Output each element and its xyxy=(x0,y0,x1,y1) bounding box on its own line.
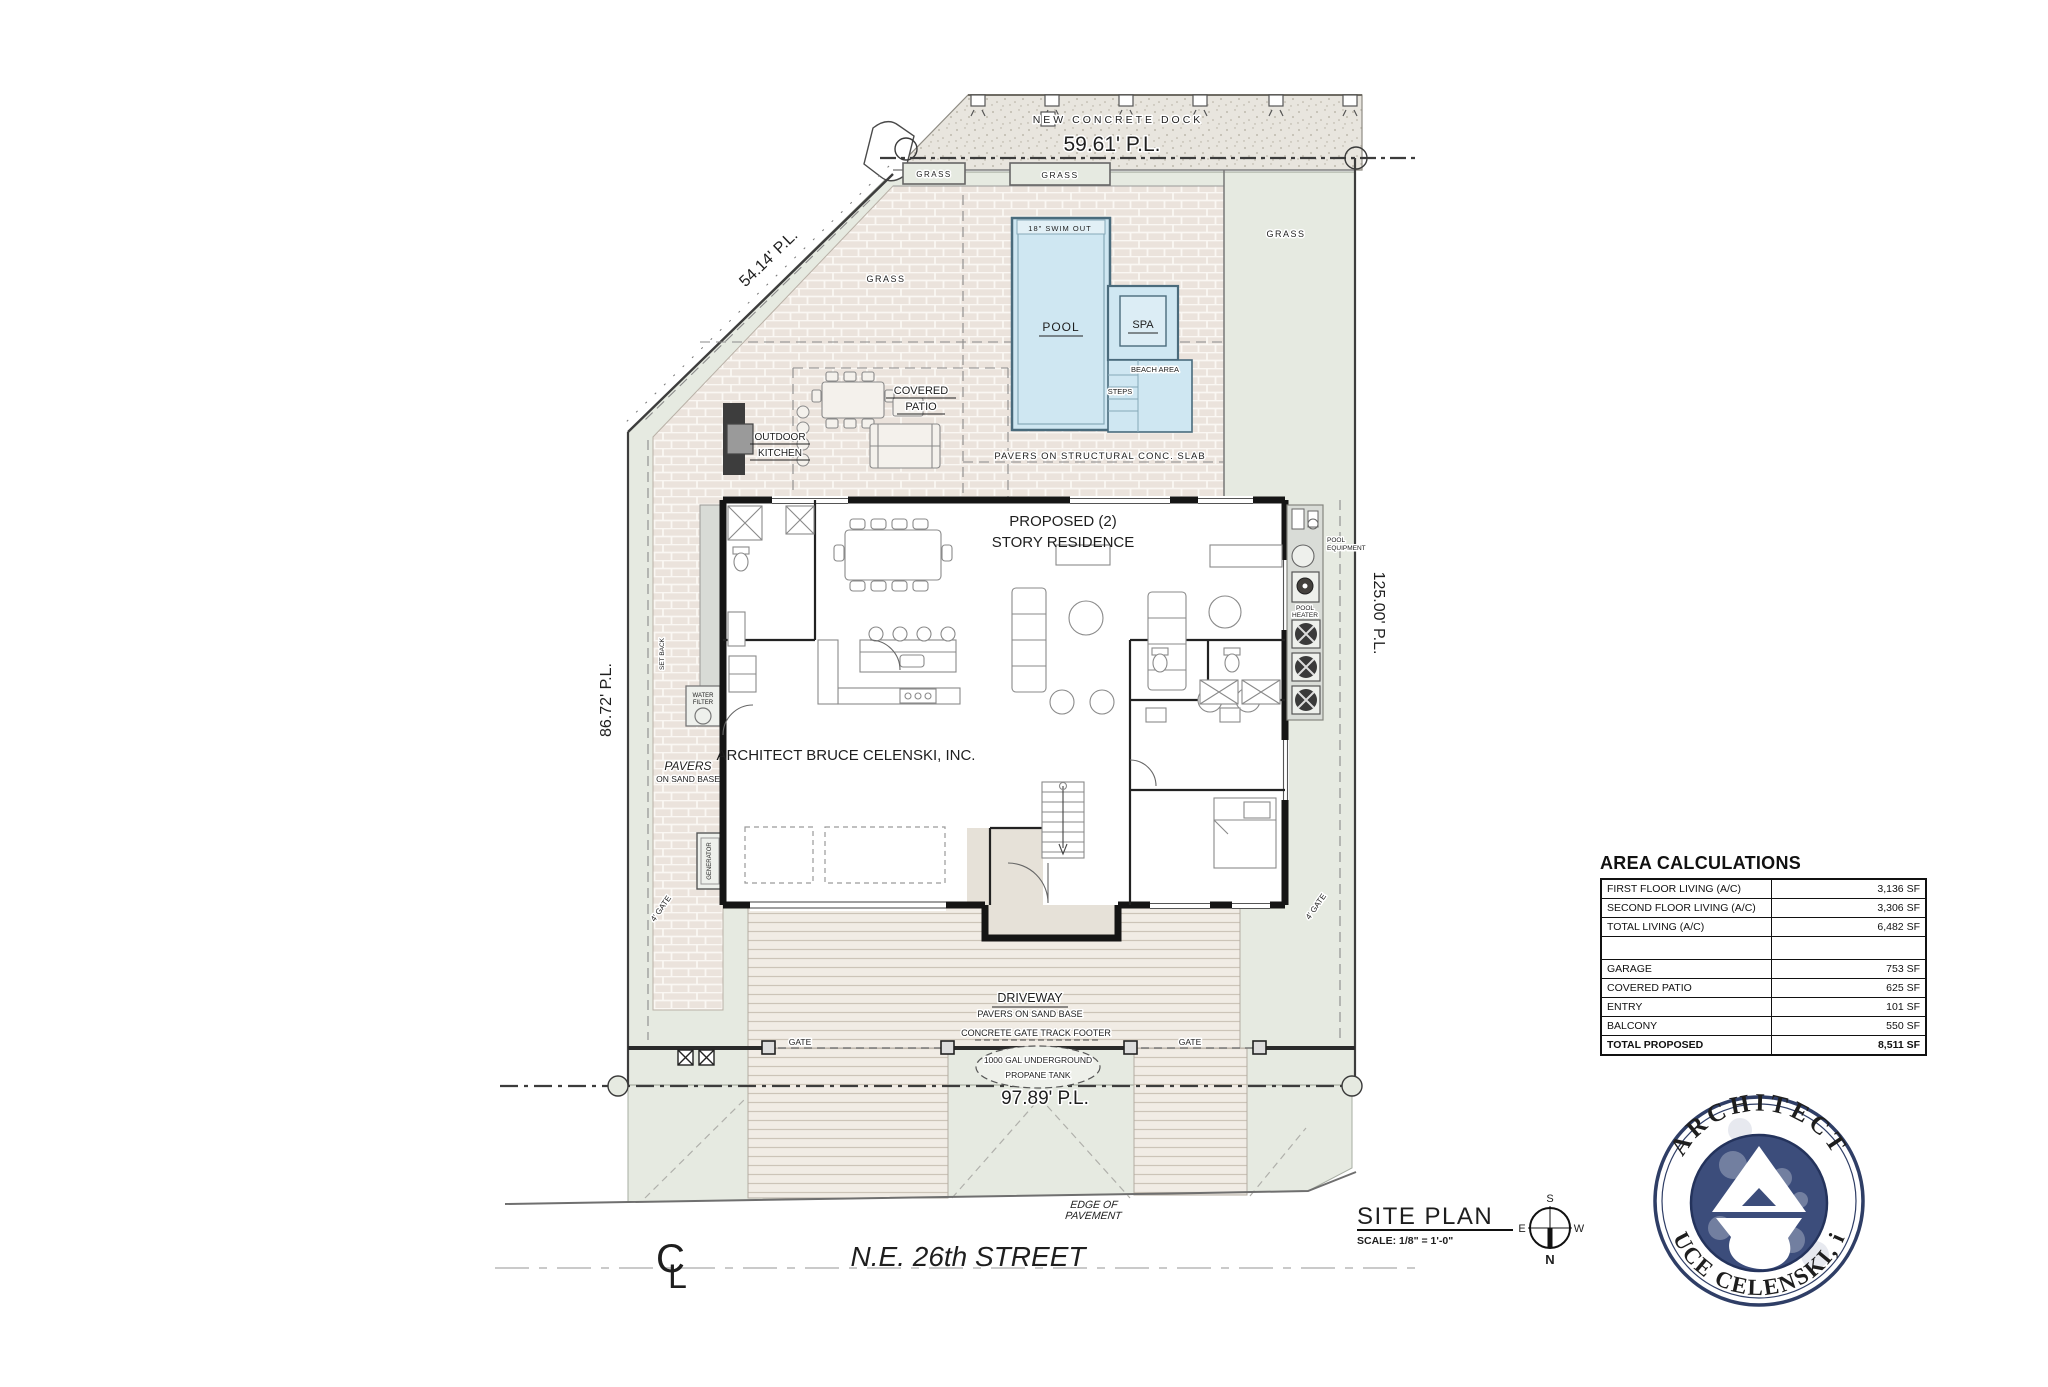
row-value: 3,306 SF xyxy=(1772,899,1927,918)
compass-n: N xyxy=(1545,1252,1554,1267)
area-calculations-title: AREA CALCULATIONS xyxy=(1600,853,1930,874)
generator-label: GENERATOR xyxy=(707,842,713,880)
pool-label: POOL xyxy=(1042,320,1079,334)
kitchen-counter xyxy=(838,688,960,704)
setback-label: SET BACK xyxy=(659,637,666,670)
residence: PROPOSED (2) STORY RESIDENCE ARCHITECT B… xyxy=(717,496,1289,938)
pavers-structural-label: PAVERS ON STRUCTURAL CONC. SLAB xyxy=(994,451,1205,462)
outdoor-kitchen-label: OUTDOOR xyxy=(754,432,805,443)
propane-label: PROPANE TANK xyxy=(1005,1070,1071,1080)
table-row: ENTRY101 SF xyxy=(1601,998,1926,1017)
row-value: 753 SF xyxy=(1772,960,1927,979)
compass-w: W xyxy=(1574,1223,1585,1235)
row-label: TOTAL LIVING (A/C) xyxy=(1601,918,1772,937)
entry-foyer xyxy=(967,828,1043,905)
edge-of-pavement-label: PAVEMENT xyxy=(1065,1210,1124,1222)
pool-heater-label: HEATER xyxy=(1292,612,1318,619)
swim-out-label: 18" SWIM OUT xyxy=(1028,224,1091,233)
table-row: BALCONY550 SF xyxy=(1601,1017,1926,1036)
area-calculations: AREA CALCULATIONS FIRST FLOOR LIVING (A/… xyxy=(1600,853,1930,1056)
water-filter-label: WATER xyxy=(693,693,715,699)
row-value: 3,136 SF xyxy=(1772,879,1927,899)
outdoor-kitchen-label: KITCHEN xyxy=(758,448,802,459)
row-label: GARAGE xyxy=(1601,960,1772,979)
row-label xyxy=(1601,937,1772,960)
grass-label: GRASS xyxy=(916,170,952,179)
covered-patio-label: COVERED xyxy=(894,385,948,397)
compass-s: S xyxy=(1546,1193,1553,1205)
pl-bottom-dim: 97.89' P.L. xyxy=(1001,1088,1089,1109)
pl-right-dim: 125.00' P.L. xyxy=(1370,572,1387,655)
architect-note: ARCHITECT BRUCE CELENSKI, INC. xyxy=(717,747,976,764)
dock-label: NEW CONCRETE DOCK xyxy=(1033,114,1204,126)
covered-patio-label: PATIO xyxy=(905,401,937,413)
table-row-empty xyxy=(1601,937,1926,960)
row-label: COVERED PATIO xyxy=(1601,979,1772,998)
row-value xyxy=(1772,937,1927,960)
gate-track-label: CONCRETE GATE TRACK FOOTER xyxy=(961,1028,1111,1038)
table-row: GARAGE753 SF xyxy=(1601,960,1926,979)
compass: S E W N xyxy=(1518,1193,1584,1267)
propane-tank xyxy=(976,1046,1100,1088)
centerline-symbol: C L xyxy=(656,1237,687,1296)
table-row: SECOND FLOOR LIVING (A/C)3,306 SF xyxy=(1601,899,1926,918)
site-plan-sheet: NEW CONCRETE DOCK 59.61' P.L. GRASS GRAS… xyxy=(0,0,2048,1387)
row-label: ENTRY xyxy=(1601,998,1772,1017)
gate-label: GATE xyxy=(1179,1037,1202,1047)
steps-label: STEPS xyxy=(1108,387,1133,396)
water-filter-label: FILTER xyxy=(693,700,714,706)
row-value: 625 SF xyxy=(1772,979,1927,998)
residence-label: STORY RESIDENCE xyxy=(992,534,1135,551)
pavers-sand-label: ON SAND BASE xyxy=(656,774,720,784)
row-label: SECOND FLOOR LIVING (A/C) xyxy=(1601,899,1772,918)
sheet-title: SITE PLAN xyxy=(1357,1203,1493,1230)
row-value: 550 SF xyxy=(1772,1017,1927,1036)
pl-left-dim: 86.72' P.L. xyxy=(598,663,615,737)
grass-label: GRASS xyxy=(1266,229,1305,239)
grass-label: GRASS xyxy=(1041,170,1078,180)
row-value: 101 SF xyxy=(1772,998,1927,1017)
driveway-label: DRIVEWAY xyxy=(997,991,1063,1005)
water-filter-unit xyxy=(686,686,720,726)
pool-heater-label: POOL xyxy=(1296,605,1314,612)
table-row: TOTAL LIVING (A/C)6,482 SF xyxy=(1601,918,1926,937)
pool-equipment-label: EQUIPMENT xyxy=(1327,545,1366,552)
area-calculations-table: FIRST FLOOR LIVING (A/C)3,136 SF SECOND … xyxy=(1600,878,1927,1056)
table-row: FIRST FLOOR LIVING (A/C)3,136 SF xyxy=(1601,879,1926,899)
garage-door xyxy=(750,899,946,911)
grass-label: GRASS xyxy=(866,274,905,284)
pavers-sand-label: PAVERS xyxy=(664,759,711,773)
dining-table xyxy=(834,519,952,591)
table-row: COVERED PATIO625 SF xyxy=(1601,979,1926,998)
spa-label: SPA xyxy=(1132,319,1154,331)
row-value: 6,482 SF xyxy=(1772,918,1927,937)
row-value: 8,511 SF xyxy=(1772,1036,1927,1056)
site-plan-drawing: NEW CONCRETE DOCK 59.61' P.L. GRASS GRAS… xyxy=(0,0,2048,1387)
titleblock: SITE PLAN SCALE: 1/8" = 1'-0" xyxy=(1357,1203,1513,1247)
propane-label: 1000 GAL UNDERGROUND xyxy=(984,1055,1092,1065)
compass-e: E xyxy=(1518,1223,1525,1235)
stairs xyxy=(1042,782,1084,858)
ac-units xyxy=(1292,620,1320,714)
grill xyxy=(727,424,753,454)
sheet-scale: SCALE: 1/8" = 1'-0" xyxy=(1357,1235,1453,1247)
table-row-total: TOTAL PROPOSED8,511 SF xyxy=(1601,1036,1926,1056)
centerline-l: L xyxy=(668,1258,687,1296)
residence-label: PROPOSED (2) xyxy=(1009,513,1117,530)
street-name: N.E. 26th STREET xyxy=(851,1241,1088,1272)
row-label: BALCONY xyxy=(1601,1017,1772,1036)
driveway-sub-label: PAVERS ON SAND BASE xyxy=(977,1009,1082,1019)
beach-area-label: BEACH AREA xyxy=(1131,365,1179,374)
gate-label: GATE xyxy=(789,1037,812,1047)
row-label: FIRST FLOOR LIVING (A/C) xyxy=(1601,879,1772,899)
outdoor-dining-table xyxy=(822,382,884,418)
pool-equipment-label: POOL xyxy=(1327,537,1345,544)
row-label: TOTAL PROPOSED xyxy=(1601,1036,1772,1056)
pl-top-dim: 59.61' P.L. xyxy=(1063,133,1160,156)
